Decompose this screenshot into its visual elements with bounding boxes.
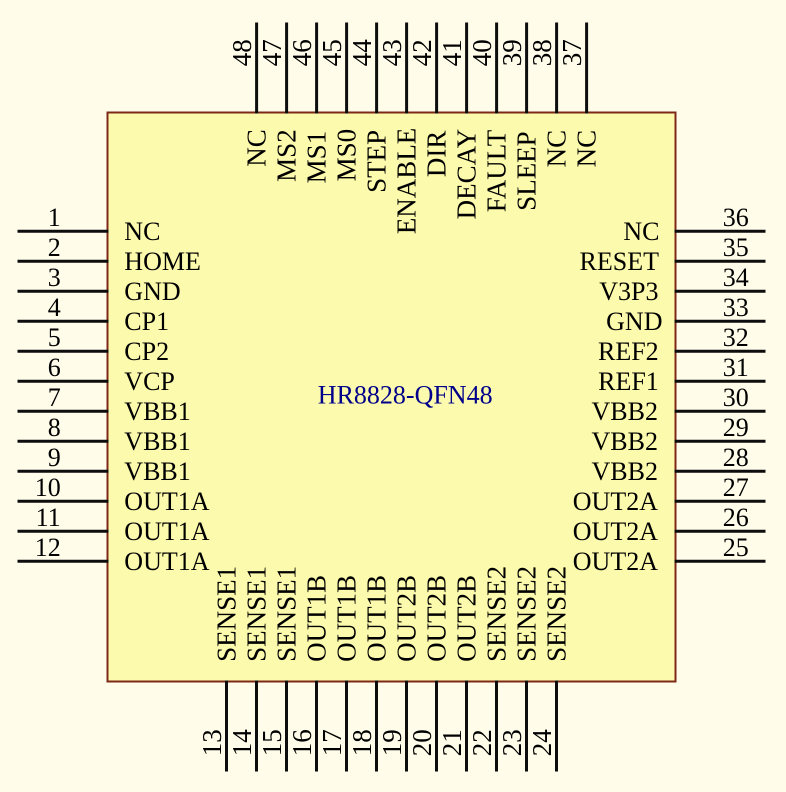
svg-text:13: 13	[197, 729, 227, 756]
svg-text:26: 26	[723, 503, 749, 532]
svg-text:25: 25	[723, 533, 749, 562]
svg-text:20: 20	[407, 729, 437, 756]
svg-text:27: 27	[723, 473, 749, 502]
svg-text:14: 14	[227, 729, 257, 757]
svg-text:43: 43	[377, 39, 407, 66]
svg-text:VCP: VCP	[124, 367, 175, 396]
svg-text:SENSE1: SENSE1	[212, 566, 242, 662]
svg-text:CP2: CP2	[124, 337, 169, 366]
svg-text:32: 32	[723, 323, 749, 352]
svg-text:42: 42	[407, 39, 437, 66]
svg-text:NC: NC	[572, 130, 602, 168]
svg-text:FAULT: FAULT	[482, 129, 512, 212]
svg-text:5: 5	[48, 323, 61, 352]
svg-text:SENSE1: SENSE1	[272, 566, 302, 662]
svg-text:OUT1B: OUT1B	[302, 575, 332, 662]
svg-text:35: 35	[723, 233, 749, 262]
svg-text:21: 21	[437, 729, 467, 756]
svg-text:OUT2B: OUT2B	[422, 575, 452, 662]
svg-text:VBB2: VBB2	[592, 457, 658, 486]
svg-text:OUT2A: OUT2A	[573, 547, 658, 576]
svg-text:9: 9	[48, 443, 61, 472]
svg-text:HR8828-QFN48: HR8828-QFN48	[318, 381, 493, 410]
svg-text:34: 34	[723, 263, 749, 292]
svg-text:18: 18	[347, 729, 377, 756]
svg-text:REF1: REF1	[598, 367, 659, 396]
svg-text:REF2: REF2	[598, 337, 659, 366]
svg-text:4: 4	[48, 293, 61, 322]
svg-text:44: 44	[347, 39, 377, 67]
svg-text:STEP: STEP	[362, 130, 392, 193]
svg-text:40: 40	[467, 39, 497, 66]
svg-text:OUT2A: OUT2A	[573, 517, 658, 546]
svg-text:33: 33	[723, 293, 749, 322]
svg-text:OUT2B: OUT2B	[392, 575, 422, 662]
svg-text:48: 48	[227, 39, 257, 66]
svg-text:NC: NC	[623, 217, 659, 246]
svg-text:MS0: MS0	[332, 129, 362, 182]
svg-text:2: 2	[48, 233, 61, 262]
svg-text:ENABLE: ENABLE	[392, 128, 422, 234]
svg-text:OUT1B: OUT1B	[362, 575, 392, 662]
svg-text:NC: NC	[124, 217, 160, 246]
svg-text:30: 30	[723, 383, 749, 412]
svg-text:36: 36	[723, 203, 749, 232]
svg-text:22: 22	[467, 729, 497, 756]
svg-text:39: 39	[497, 39, 527, 66]
svg-text:RESET: RESET	[580, 247, 660, 276]
svg-text:38: 38	[527, 39, 557, 66]
svg-text:24: 24	[527, 729, 557, 757]
svg-text:MS1: MS1	[302, 131, 332, 184]
svg-text:GND: GND	[124, 277, 180, 306]
svg-text:OUT1B: OUT1B	[332, 575, 362, 662]
svg-text:47: 47	[257, 39, 287, 66]
svg-text:6: 6	[48, 353, 61, 382]
svg-text:NC: NC	[242, 129, 272, 167]
svg-text:VBB1: VBB1	[124, 397, 190, 426]
svg-text:OUT2B: OUT2B	[452, 575, 482, 662]
svg-text:11: 11	[36, 503, 61, 532]
svg-text:1: 1	[48, 203, 61, 232]
svg-text:HOME: HOME	[124, 247, 201, 276]
svg-text:VBB1: VBB1	[124, 427, 190, 456]
svg-text:CP1: CP1	[124, 307, 169, 336]
svg-text:28: 28	[723, 443, 749, 472]
svg-text:OUT1A: OUT1A	[124, 487, 209, 516]
svg-text:45: 45	[317, 39, 347, 66]
svg-text:SENSE2: SENSE2	[542, 566, 572, 662]
svg-text:DIR: DIR	[422, 131, 452, 178]
svg-text:MS2: MS2	[272, 129, 302, 182]
svg-text:SENSE1: SENSE1	[242, 566, 272, 662]
svg-text:7: 7	[48, 383, 61, 412]
svg-text:16: 16	[287, 729, 317, 756]
svg-text:29: 29	[723, 413, 749, 442]
svg-text:15: 15	[257, 729, 287, 756]
svg-text:OUT1A: OUT1A	[124, 517, 209, 546]
svg-text:31: 31	[723, 353, 749, 382]
svg-text:10: 10	[35, 473, 61, 502]
svg-text:VBB2: VBB2	[592, 397, 658, 426]
svg-text:3: 3	[48, 263, 61, 292]
svg-text:SENSE2: SENSE2	[512, 566, 542, 662]
svg-text:12: 12	[35, 533, 61, 562]
svg-text:SENSE2: SENSE2	[482, 566, 512, 662]
svg-text:46: 46	[287, 39, 317, 66]
svg-text:SLEEP: SLEEP	[512, 131, 542, 211]
svg-text:V3P3: V3P3	[599, 277, 658, 306]
svg-text:OUT2A: OUT2A	[573, 487, 658, 516]
svg-text:VBB1: VBB1	[124, 457, 190, 486]
svg-text:41: 41	[437, 39, 467, 66]
svg-text:19: 19	[377, 729, 407, 756]
svg-text:OUT1A: OUT1A	[124, 547, 209, 576]
svg-text:37: 37	[557, 39, 587, 66]
svg-text:DECAY: DECAY	[452, 129, 482, 220]
svg-text:NC: NC	[542, 130, 572, 168]
svg-text:17: 17	[317, 729, 347, 756]
svg-text:GND: GND	[606, 307, 662, 336]
svg-text:23: 23	[497, 729, 527, 756]
svg-text:8: 8	[48, 413, 61, 442]
svg-text:VBB2: VBB2	[592, 427, 658, 456]
